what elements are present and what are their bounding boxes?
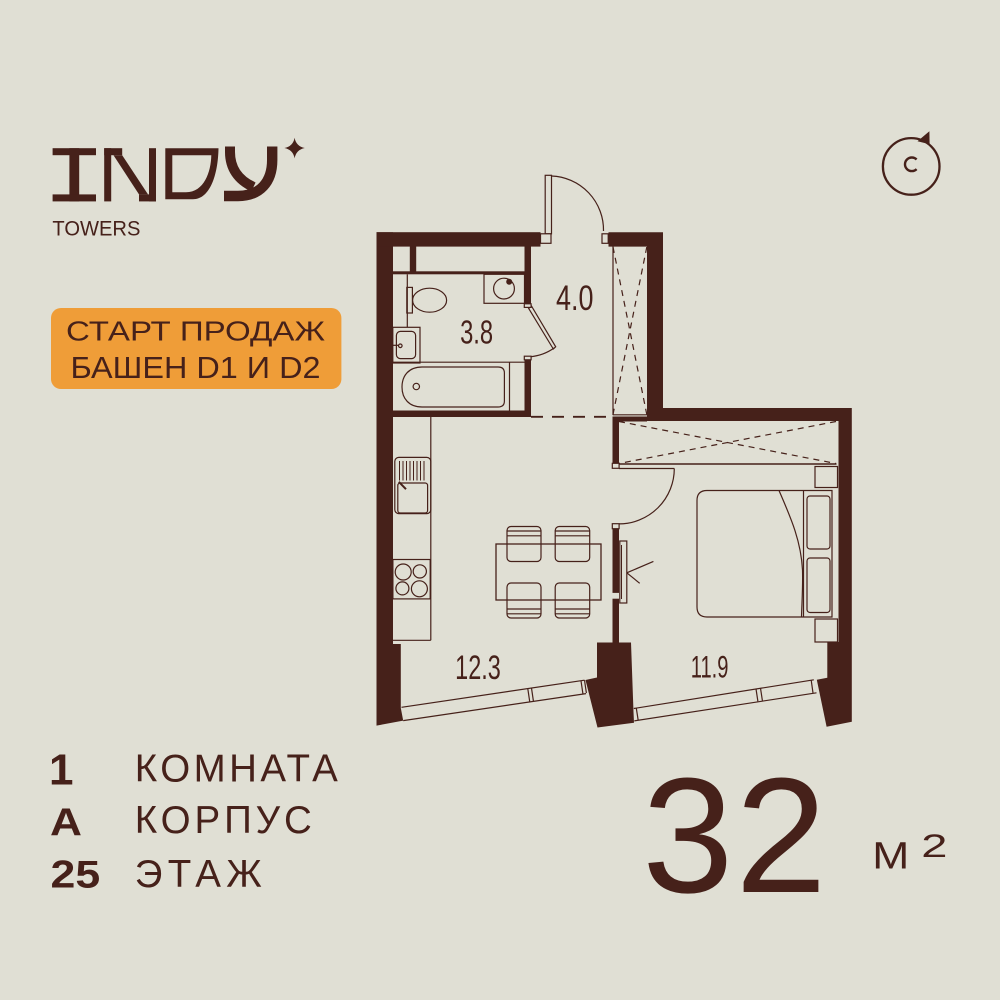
svg-text:2: 2	[921, 827, 947, 864]
svg-text:12.3: 12.3	[455, 650, 501, 687]
svg-text:КОРПУС: КОРПУС	[135, 799, 312, 842]
svg-text:25: 25	[51, 852, 101, 895]
svg-text:4.0: 4.0	[556, 279, 593, 318]
svg-text:32: 32	[642, 744, 828, 927]
svg-text:ЭТАЖ: ЭТАЖ	[135, 853, 262, 896]
svg-text:TOWERS: TOWERS	[52, 217, 140, 241]
svg-text:М: М	[872, 835, 909, 877]
svg-text:3.8: 3.8	[460, 315, 493, 352]
svg-text:БАШЕН D1 И D2: БАШЕН D1 И D2	[71, 350, 321, 385]
svg-text:КОМНАТА: КОМНАТА	[135, 748, 338, 791]
svg-text:А: А	[50, 800, 82, 844]
svg-text:11.9: 11.9	[691, 649, 729, 685]
svg-text:1: 1	[49, 746, 73, 795]
svg-text:СТАРТ ПРОДАЖ: СТАРТ ПРОДАЖ	[66, 316, 325, 347]
